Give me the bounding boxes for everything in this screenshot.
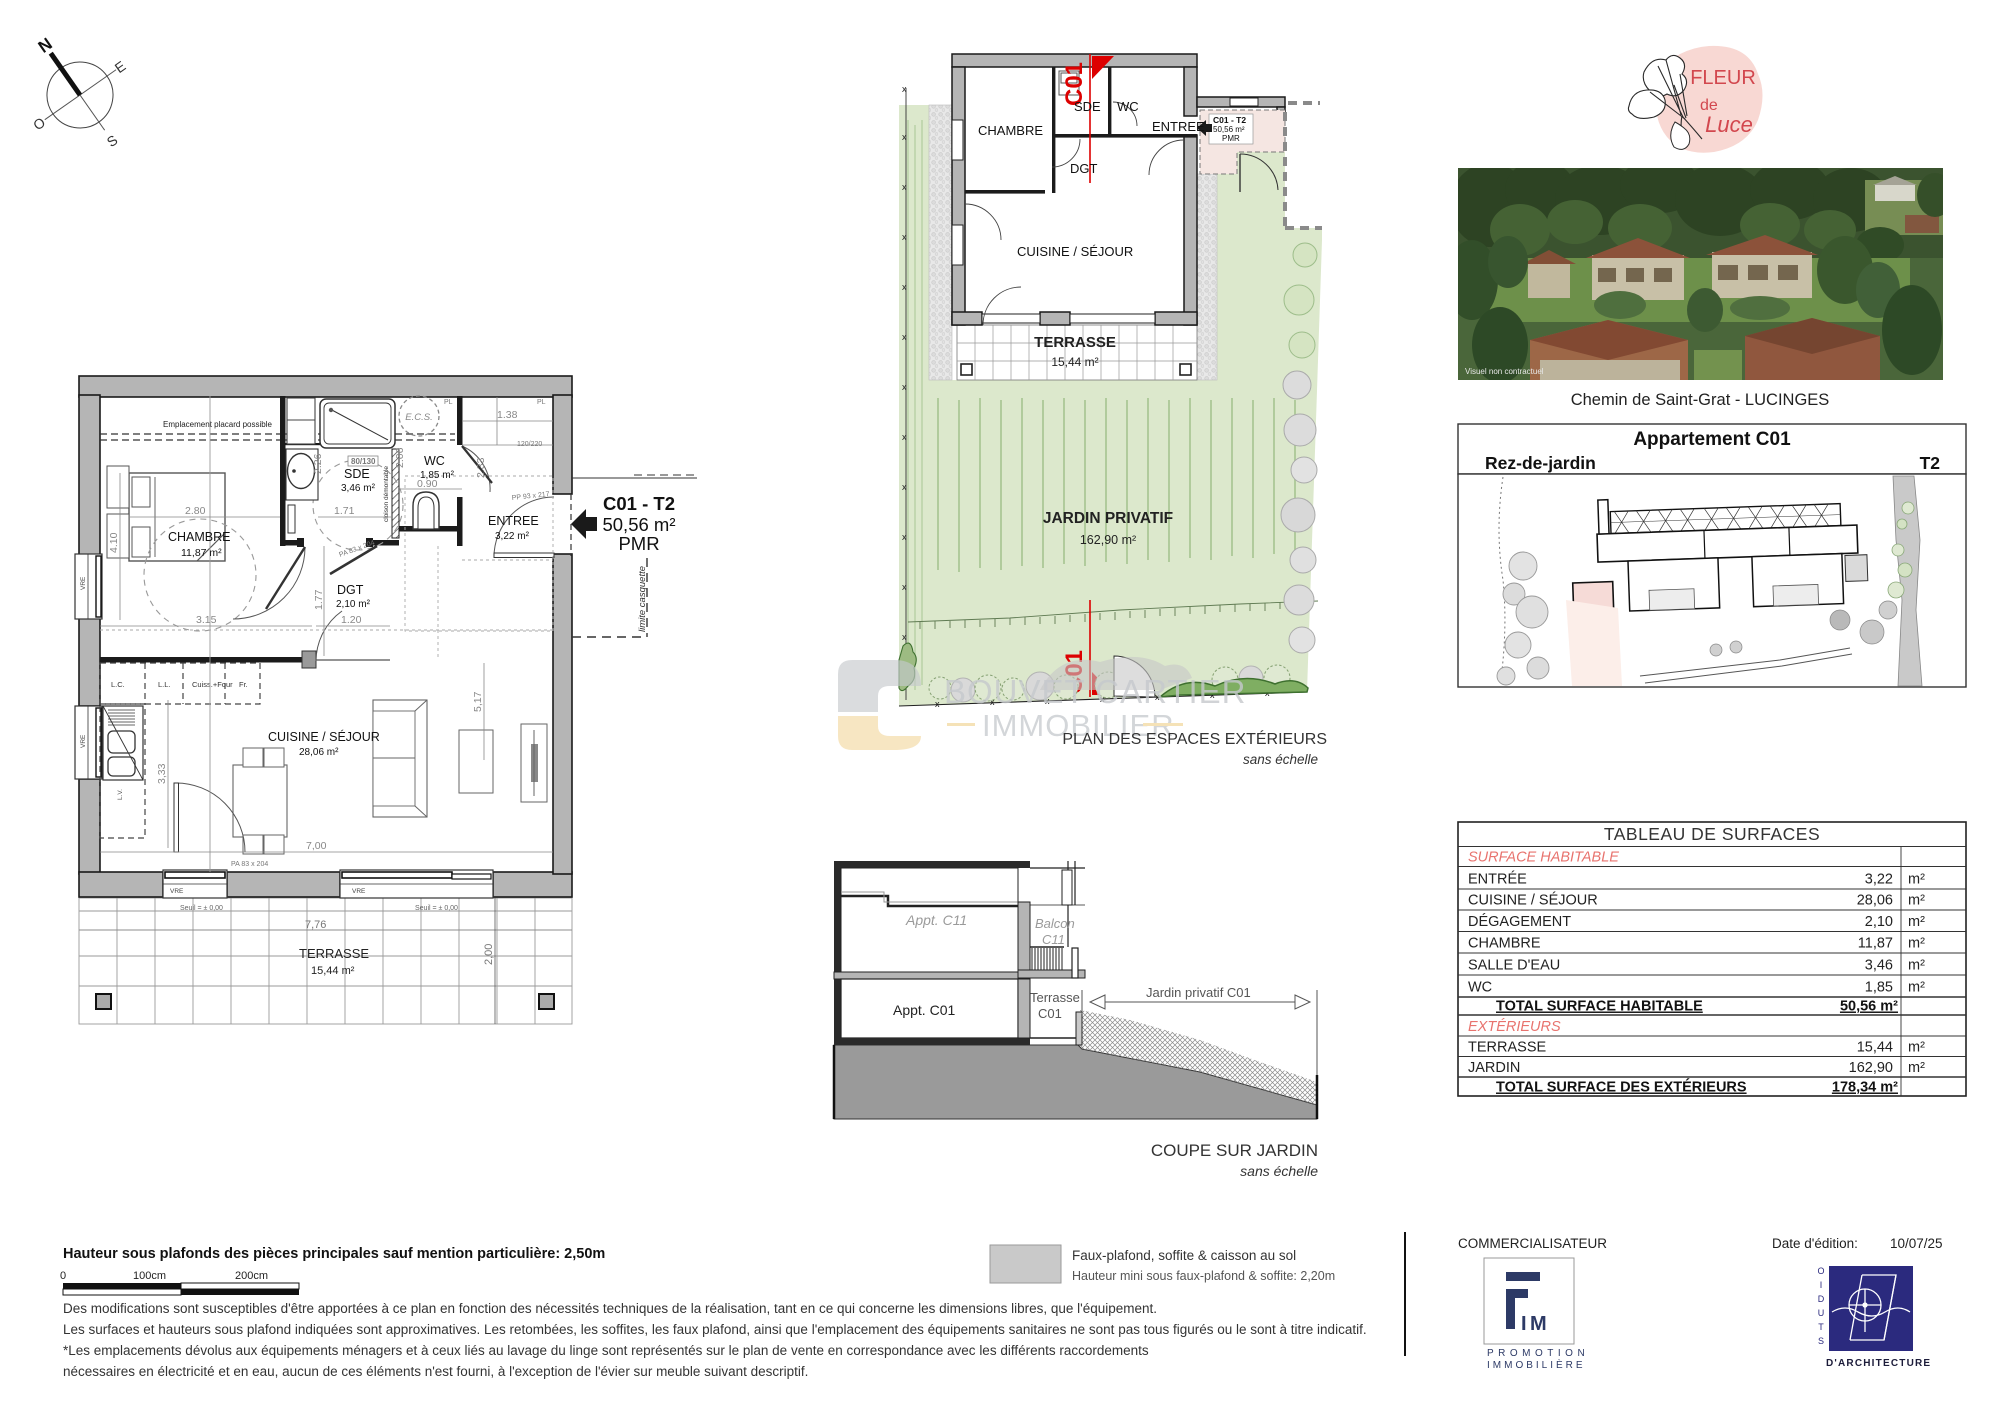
svg-text:IM: IM — [1521, 1313, 1550, 1335]
svg-text:COMMERCIALISATEUR: COMMERCIALISATEUR — [1458, 1236, 1607, 1251]
svg-text:28,06: 28,06 — [1857, 893, 1893, 909]
svg-text:15,44: 15,44 — [1857, 1040, 1893, 1056]
svg-text:ENTRÉE: ENTRÉE — [1468, 871, 1527, 888]
svg-text:O: O — [1817, 1266, 1824, 1276]
svg-text:m²: m² — [1908, 980, 1925, 996]
svg-text:*Les emplacements dévolus aux: *Les emplacements dévolus aux équipement… — [63, 1343, 1149, 1358]
svg-text:Les surfaces et hauteurs sous: Les surfaces et hauteurs sous plafond in… — [63, 1322, 1367, 1337]
svg-text:TERRASSE: TERRASSE — [1468, 1040, 1546, 1056]
svg-text:WC: WC — [1468, 980, 1492, 996]
svg-text:EXTÉRIEURS: EXTÉRIEURS — [1468, 1018, 1561, 1035]
svg-text:TOTAL SURFACE HABITABLE: TOTAL SURFACE HABITABLE — [1496, 999, 1703, 1015]
svg-text:m²: m² — [1908, 1040, 1925, 1056]
svg-text:S: S — [1818, 1336, 1824, 1346]
svg-text:m²: m² — [1908, 1060, 1925, 1076]
svg-text:CUISINE / SÉJOUR: CUISINE / SÉJOUR — [1468, 892, 1598, 909]
svg-text:SURFACE HABITABLE: SURFACE HABITABLE — [1468, 850, 1619, 866]
svg-text:m²: m² — [1908, 936, 1925, 952]
svg-text:nécessaires en électricité et: nécessaires en électricité et en eau, au… — [63, 1364, 808, 1379]
svg-text:Date d'édition:: Date d'édition: — [1772, 1236, 1858, 1251]
svg-text:I: I — [1820, 1280, 1823, 1290]
svg-text:1,85: 1,85 — [1865, 980, 1893, 996]
svg-text:U: U — [1818, 1308, 1825, 1318]
svg-text:D: D — [1818, 1294, 1825, 1304]
svg-text:Des modifications sont suscept: Des modifications sont susceptibles d'êt… — [63, 1301, 1157, 1316]
svg-text:TABLEAU DE SURFACES: TABLEAU DE SURFACES — [1604, 824, 1820, 844]
svg-text:CHAMBRE: CHAMBRE — [1468, 936, 1541, 952]
svg-text:IMMOBILIÈRE: IMMOBILIÈRE — [1487, 1358, 1586, 1371]
svg-text:Hauteur sous plafonds des pièc: Hauteur sous plafonds des pièces princip… — [63, 1246, 605, 1262]
svg-text:m²: m² — [1908, 958, 1925, 974]
svg-text:PROMOTION: PROMOTION — [1487, 1348, 1589, 1359]
svg-text:T: T — [1818, 1322, 1824, 1332]
svg-text:JARDIN: JARDIN — [1468, 1060, 1520, 1076]
svg-text:162,90: 162,90 — [1849, 1060, 1893, 1076]
svg-text:D'ARCHITECTURE: D'ARCHITECTURE — [1826, 1358, 1931, 1369]
svg-text:m²: m² — [1908, 893, 1925, 909]
svg-text:m²: m² — [1908, 914, 1925, 930]
svg-text:200cm: 200cm — [235, 1270, 268, 1282]
svg-text:100cm: 100cm — [133, 1270, 166, 1282]
svg-text:0: 0 — [60, 1270, 66, 1282]
svg-text:3,22: 3,22 — [1865, 872, 1893, 888]
svg-text:DÉGAGEMENT: DÉGAGEMENT — [1468, 913, 1571, 930]
svg-text:2,10: 2,10 — [1865, 914, 1893, 930]
svg-text:10/07/25: 10/07/25 — [1890, 1236, 1943, 1251]
svg-text:TOTAL SURFACE DES EXTÉRIEURS: TOTAL SURFACE DES EXTÉRIEURS — [1496, 1079, 1747, 1096]
svg-text:SALLE D'EAU: SALLE D'EAU — [1468, 958, 1560, 974]
svg-text:m²: m² — [1908, 872, 1925, 888]
svg-text:178,34 m²: 178,34 m² — [1832, 1080, 1898, 1096]
svg-text:11,87: 11,87 — [1858, 936, 1893, 952]
svg-text:3,46: 3,46 — [1865, 958, 1893, 974]
svg-text:50,56 m²: 50,56 m² — [1840, 999, 1898, 1015]
